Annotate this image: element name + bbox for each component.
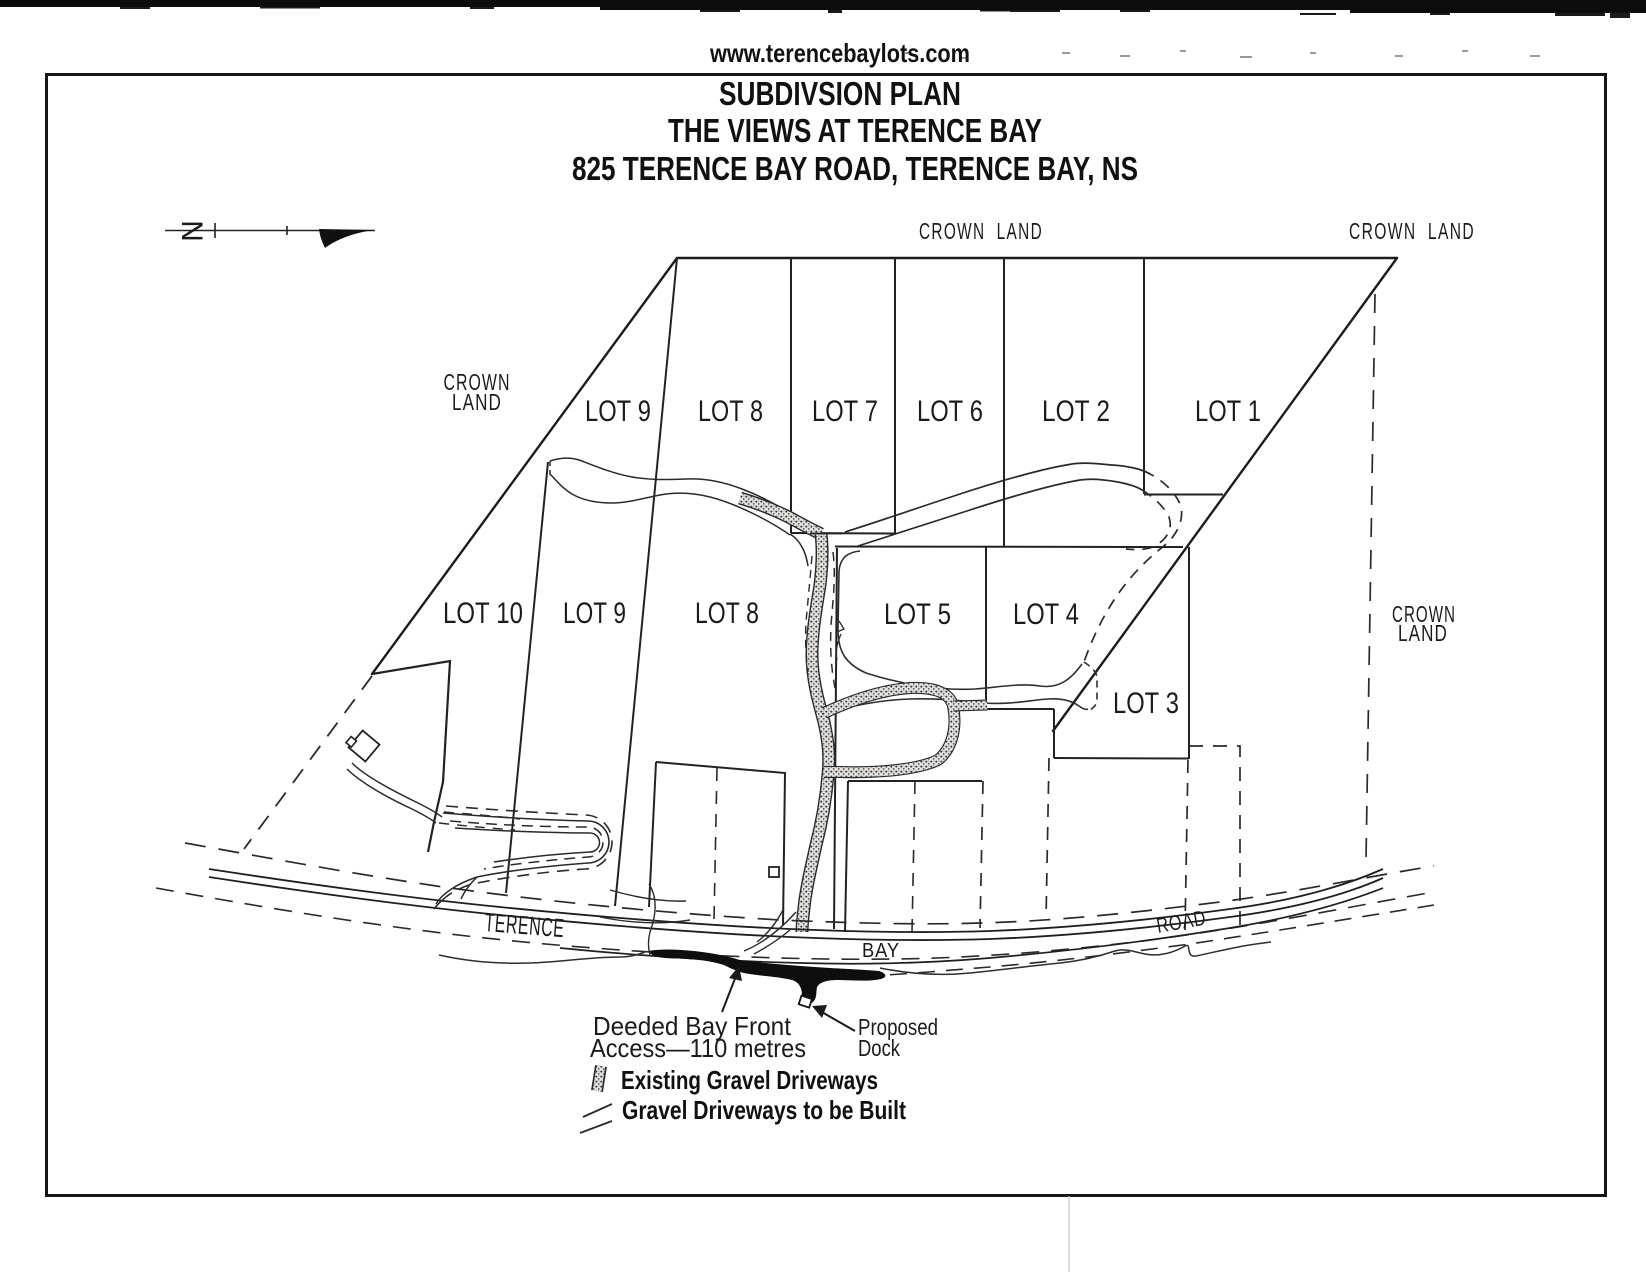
svg-text:LOT 2: LOT 2 bbox=[1042, 395, 1110, 428]
svg-text:THE VIEWS AT TERENCE BAY: THE VIEWS AT TERENCE BAY bbox=[668, 112, 1042, 149]
svg-text:LOT 6: LOT 6 bbox=[917, 395, 983, 428]
svg-text:825 TERENCE BAY ROAD, TERENCE: 825 TERENCE BAY ROAD, TERENCE BAY, NS bbox=[572, 150, 1138, 187]
svg-text:CROWN LAND: CROWN LAND bbox=[919, 218, 1043, 244]
svg-text:LOT 5: LOT 5 bbox=[884, 598, 951, 631]
svg-text:LOT 4: LOT 4 bbox=[1013, 598, 1079, 631]
svg-text:LOT 9: LOT 9 bbox=[585, 395, 651, 428]
svg-text:LOT 3: LOT 3 bbox=[1113, 687, 1179, 720]
svg-text:LOT 8: LOT 8 bbox=[695, 597, 759, 630]
svg-text:LOT 10: LOT 10 bbox=[443, 597, 523, 630]
svg-text:Existing Gravel Driveways: Existing Gravel Driveways bbox=[621, 1065, 878, 1095]
svg-text:SUBDIVSION PLAN: SUBDIVSION PLAN bbox=[719, 75, 961, 112]
svg-text:LOT 7: LOT 7 bbox=[812, 395, 878, 428]
svg-text:Gravel Driveways to be Built: Gravel Driveways to be Built bbox=[622, 1095, 906, 1125]
svg-text:CROWN LAND: CROWN LAND bbox=[1349, 218, 1475, 244]
svg-text:Dock: Dock bbox=[858, 1035, 900, 1061]
svg-text:TERENCE: TERENCE bbox=[484, 907, 566, 943]
svg-text:LAND: LAND bbox=[1398, 620, 1448, 646]
svg-text:LOT 8: LOT 8 bbox=[698, 395, 763, 428]
svg-text:N: N bbox=[175, 220, 208, 242]
svg-text:LOT 1: LOT 1 bbox=[1195, 395, 1261, 428]
svg-text:Access—110 metres: Access—110 metres bbox=[590, 1033, 806, 1063]
svg-text:www.terencebaylots.com: www.terencebaylots.com bbox=[709, 38, 970, 68]
svg-text:LAND: LAND bbox=[452, 389, 502, 415]
svg-text:LOT 9: LOT 9 bbox=[563, 597, 626, 630]
svg-text:BAY: BAY bbox=[862, 940, 900, 962]
